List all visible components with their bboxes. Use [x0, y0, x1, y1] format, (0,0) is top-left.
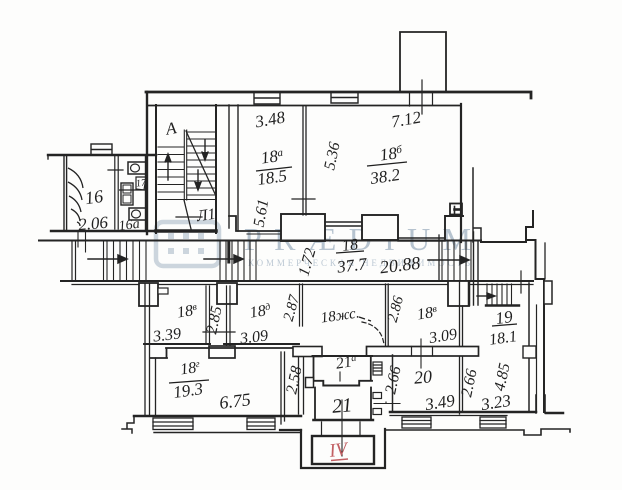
- svg-text:3.09: 3.09: [238, 327, 269, 347]
- svg-text:Л1: Л1: [195, 206, 217, 226]
- svg-text:6.75: 6.75: [218, 389, 252, 413]
- svg-text:21: 21: [331, 394, 353, 418]
- svg-text:16: 16: [84, 186, 105, 208]
- svg-text:37.7: 37.7: [335, 254, 369, 277]
- svg-text:2.06: 2.06: [77, 213, 109, 235]
- svg-text:3.39: 3.39: [151, 325, 182, 345]
- svg-text:20: 20: [413, 366, 433, 387]
